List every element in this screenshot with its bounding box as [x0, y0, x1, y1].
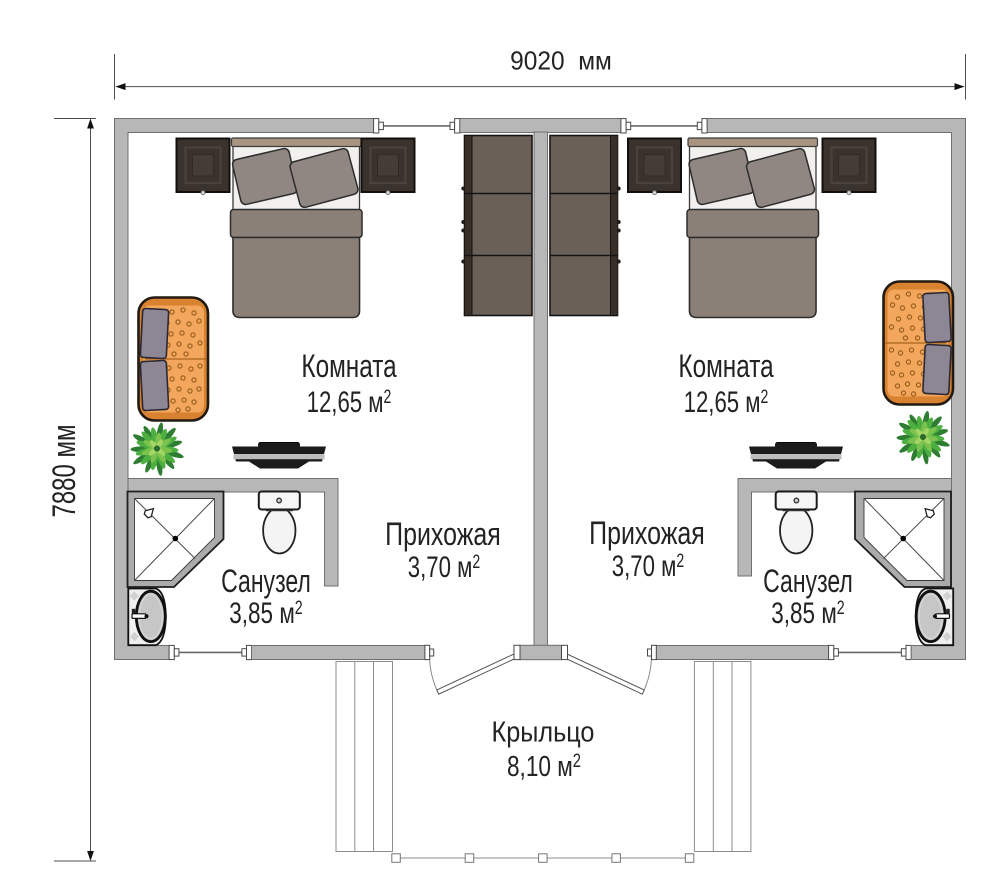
svg-text:Комната: Комната	[301, 349, 396, 385]
svg-text:3,70 м2: 3,70 м2	[612, 549, 684, 583]
svg-text:7880 мм: 7880 мм	[46, 424, 82, 517]
svg-text:Комната: Комната	[678, 349, 773, 385]
svg-text:Санузел: Санузел	[221, 563, 311, 599]
svg-text:Прихожая: Прихожая	[589, 516, 705, 552]
svg-text:3,85 м2: 3,85 м2	[771, 596, 844, 630]
svg-text:3,85 м2: 3,85 м2	[229, 596, 302, 630]
svg-text:12,65 м2: 12,65 м2	[307, 385, 392, 419]
svg-text:Крыльцо: Крыльцо	[492, 715, 595, 748]
svg-text:9020 мм: 9020 мм	[510, 47, 612, 76]
svg-text:8,10 м2: 8,10 м2	[507, 749, 581, 782]
svg-text:Санузел: Санузел	[763, 563, 853, 599]
svg-text:3,70 м2: 3,70 м2	[408, 550, 480, 584]
svg-text:12,65 м2: 12,65 м2	[684, 385, 769, 419]
svg-text:Прихожая: Прихожая	[385, 517, 501, 553]
